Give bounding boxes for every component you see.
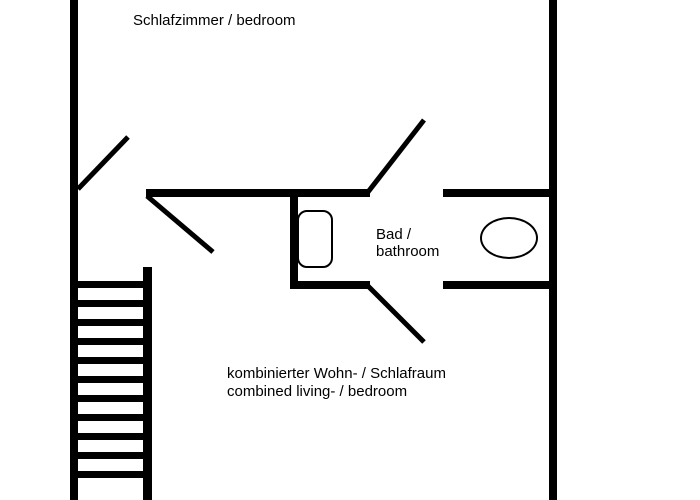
bathroom-bottom-wall: [290, 281, 370, 289]
bathroom-bottom-door-swing: [368, 286, 424, 342]
floor-plan: Schlafzimmer / bedroom Bad / bathroom ko…: [0, 0, 700, 500]
right-outer-wall: [549, 0, 557, 500]
stair-tread: [78, 281, 152, 288]
stair-tread: [78, 433, 152, 440]
bedroom-room-label: Schlafzimmer / bedroom: [133, 12, 296, 30]
bathroom-top-door-swing: [368, 120, 424, 192]
living-right-bottom-wall: [443, 281, 549, 289]
bedroom-door-swing: [78, 137, 128, 189]
stair-tread: [78, 300, 152, 307]
door-swing-canvas: [0, 0, 700, 500]
stair-tread: [78, 338, 152, 345]
bathroom-room-label: Bad / bathroom: [376, 226, 439, 260]
living-label-line2: combined living- / bedroom: [227, 383, 446, 401]
stair-tread: [78, 376, 152, 383]
stair-tread: [78, 471, 152, 478]
washbasin-fixture: [480, 217, 538, 259]
stair-tread: [78, 414, 152, 421]
toilet-fixture: [297, 210, 333, 268]
stair-tread: [78, 395, 152, 402]
living-room-label: kombinierter Wohn- / Schlafraum combined…: [227, 365, 446, 401]
bathroom-label-line1: Bad /: [376, 226, 439, 243]
stair-tread: [78, 319, 152, 326]
stair-tread: [78, 357, 152, 364]
bathroom-right-top-wall: [443, 189, 549, 197]
living-door-swing: [147, 196, 213, 252]
living-label-line1: kombinierter Wohn- / Schlafraum: [227, 365, 446, 383]
partition-wall: [146, 189, 370, 197]
stair-tread: [78, 452, 152, 459]
bathroom-label-line2: bathroom: [376, 243, 439, 260]
left-outer-wall: [70, 0, 78, 500]
